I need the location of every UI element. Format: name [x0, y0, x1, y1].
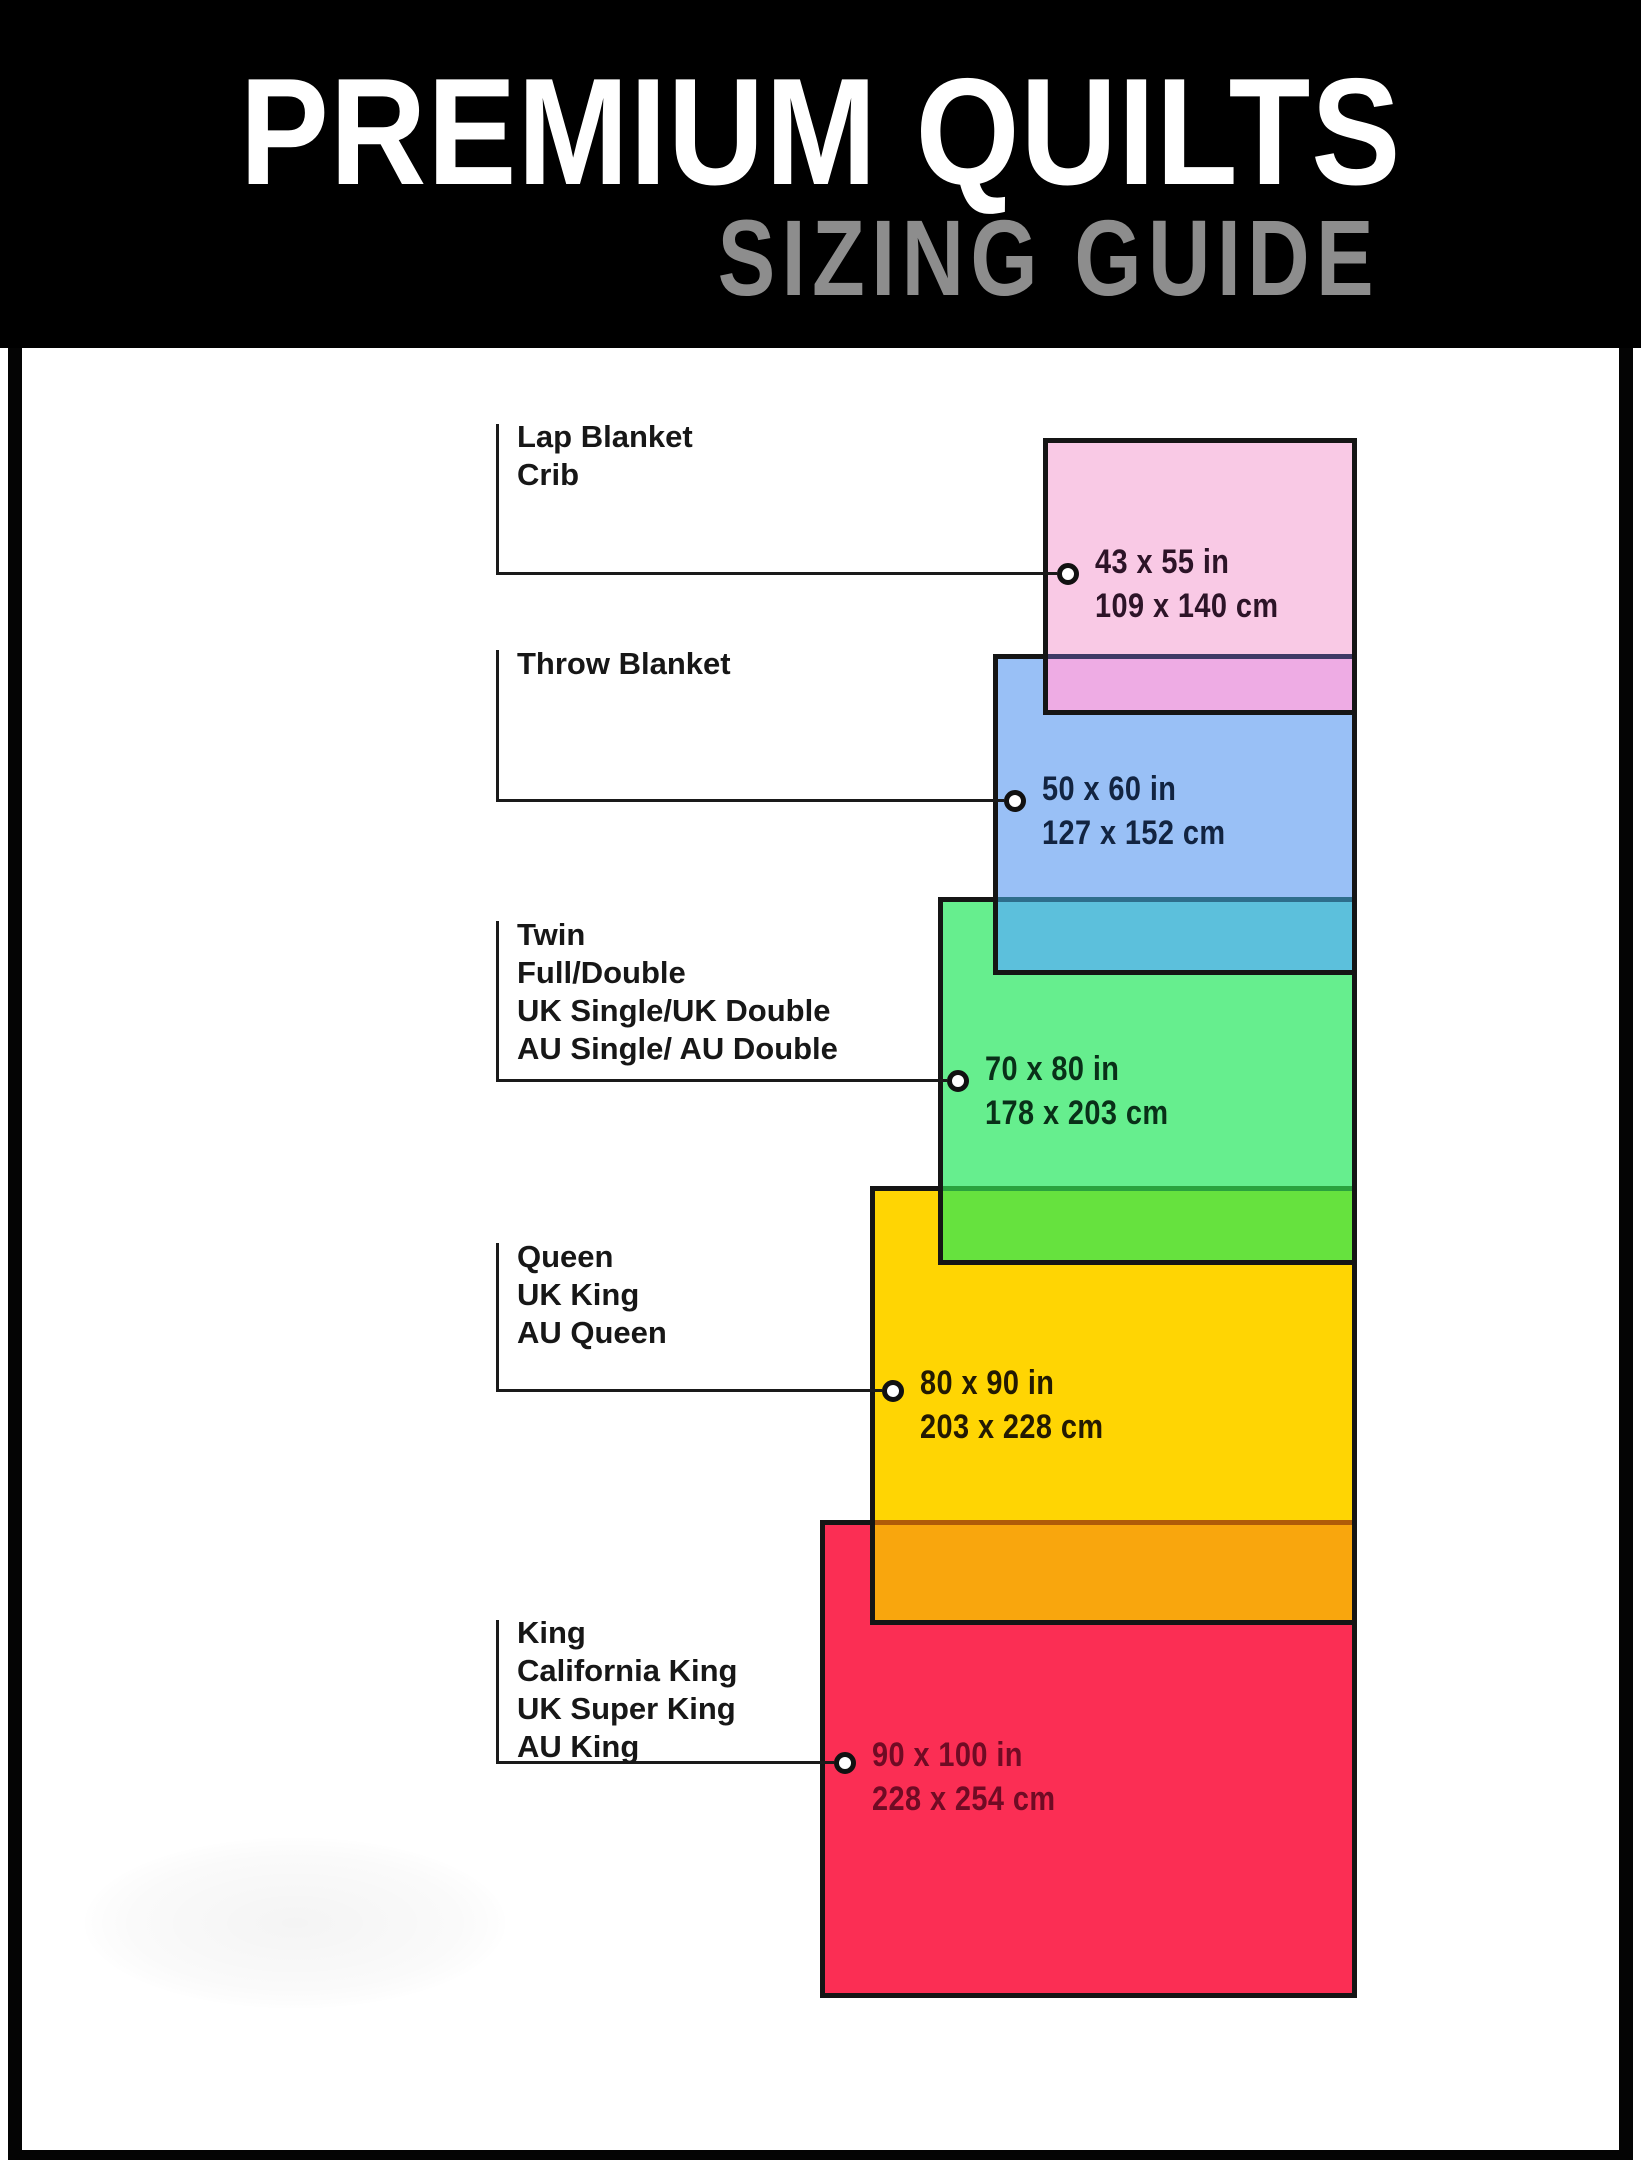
- connector-horizontal-lap-blanket-crib: [496, 572, 1057, 575]
- connector-horizontal-twin-full-double: [496, 1079, 947, 1082]
- infographic-canvas: PREMIUM QUILTS SIZING GUIDE Lap Blanket …: [0, 0, 1641, 2160]
- quilt-outline-lap-blanket-crib: [1043, 438, 1357, 715]
- connector-horizontal-king-cal-king: [496, 1761, 834, 1764]
- covered-border-twin-full-double: [998, 897, 1352, 902]
- connector-vertical-lap-blanket-crib: [496, 424, 499, 575]
- header-banner: PREMIUM QUILTS SIZING GUIDE: [0, 0, 1641, 348]
- connector-horizontal-throw-blanket: [496, 799, 1004, 802]
- connector-marker-king-cal-king: [834, 1752, 856, 1774]
- page-title: PREMIUM QUILTS: [98, 56, 1542, 208]
- connector-vertical-throw-blanket: [496, 650, 499, 802]
- page-subtitle: SIZING GUIDE: [718, 204, 1380, 312]
- covered-border-queen: [943, 1186, 1352, 1191]
- connector-vertical-queen: [496, 1243, 499, 1392]
- connector-vertical-king-cal-king: [496, 1620, 499, 1764]
- connector-marker-queen: [882, 1380, 904, 1402]
- connector-marker-twin-full-double: [947, 1070, 969, 1092]
- connector-marker-throw-blanket: [1004, 790, 1026, 812]
- covered-border-king-cal-king: [875, 1520, 1352, 1525]
- connector-horizontal-queen: [496, 1389, 882, 1392]
- connector-marker-lap-blanket-crib: [1057, 563, 1079, 585]
- covered-border-throw-blanket: [1048, 654, 1352, 659]
- connector-vertical-twin-full-double: [496, 921, 499, 1082]
